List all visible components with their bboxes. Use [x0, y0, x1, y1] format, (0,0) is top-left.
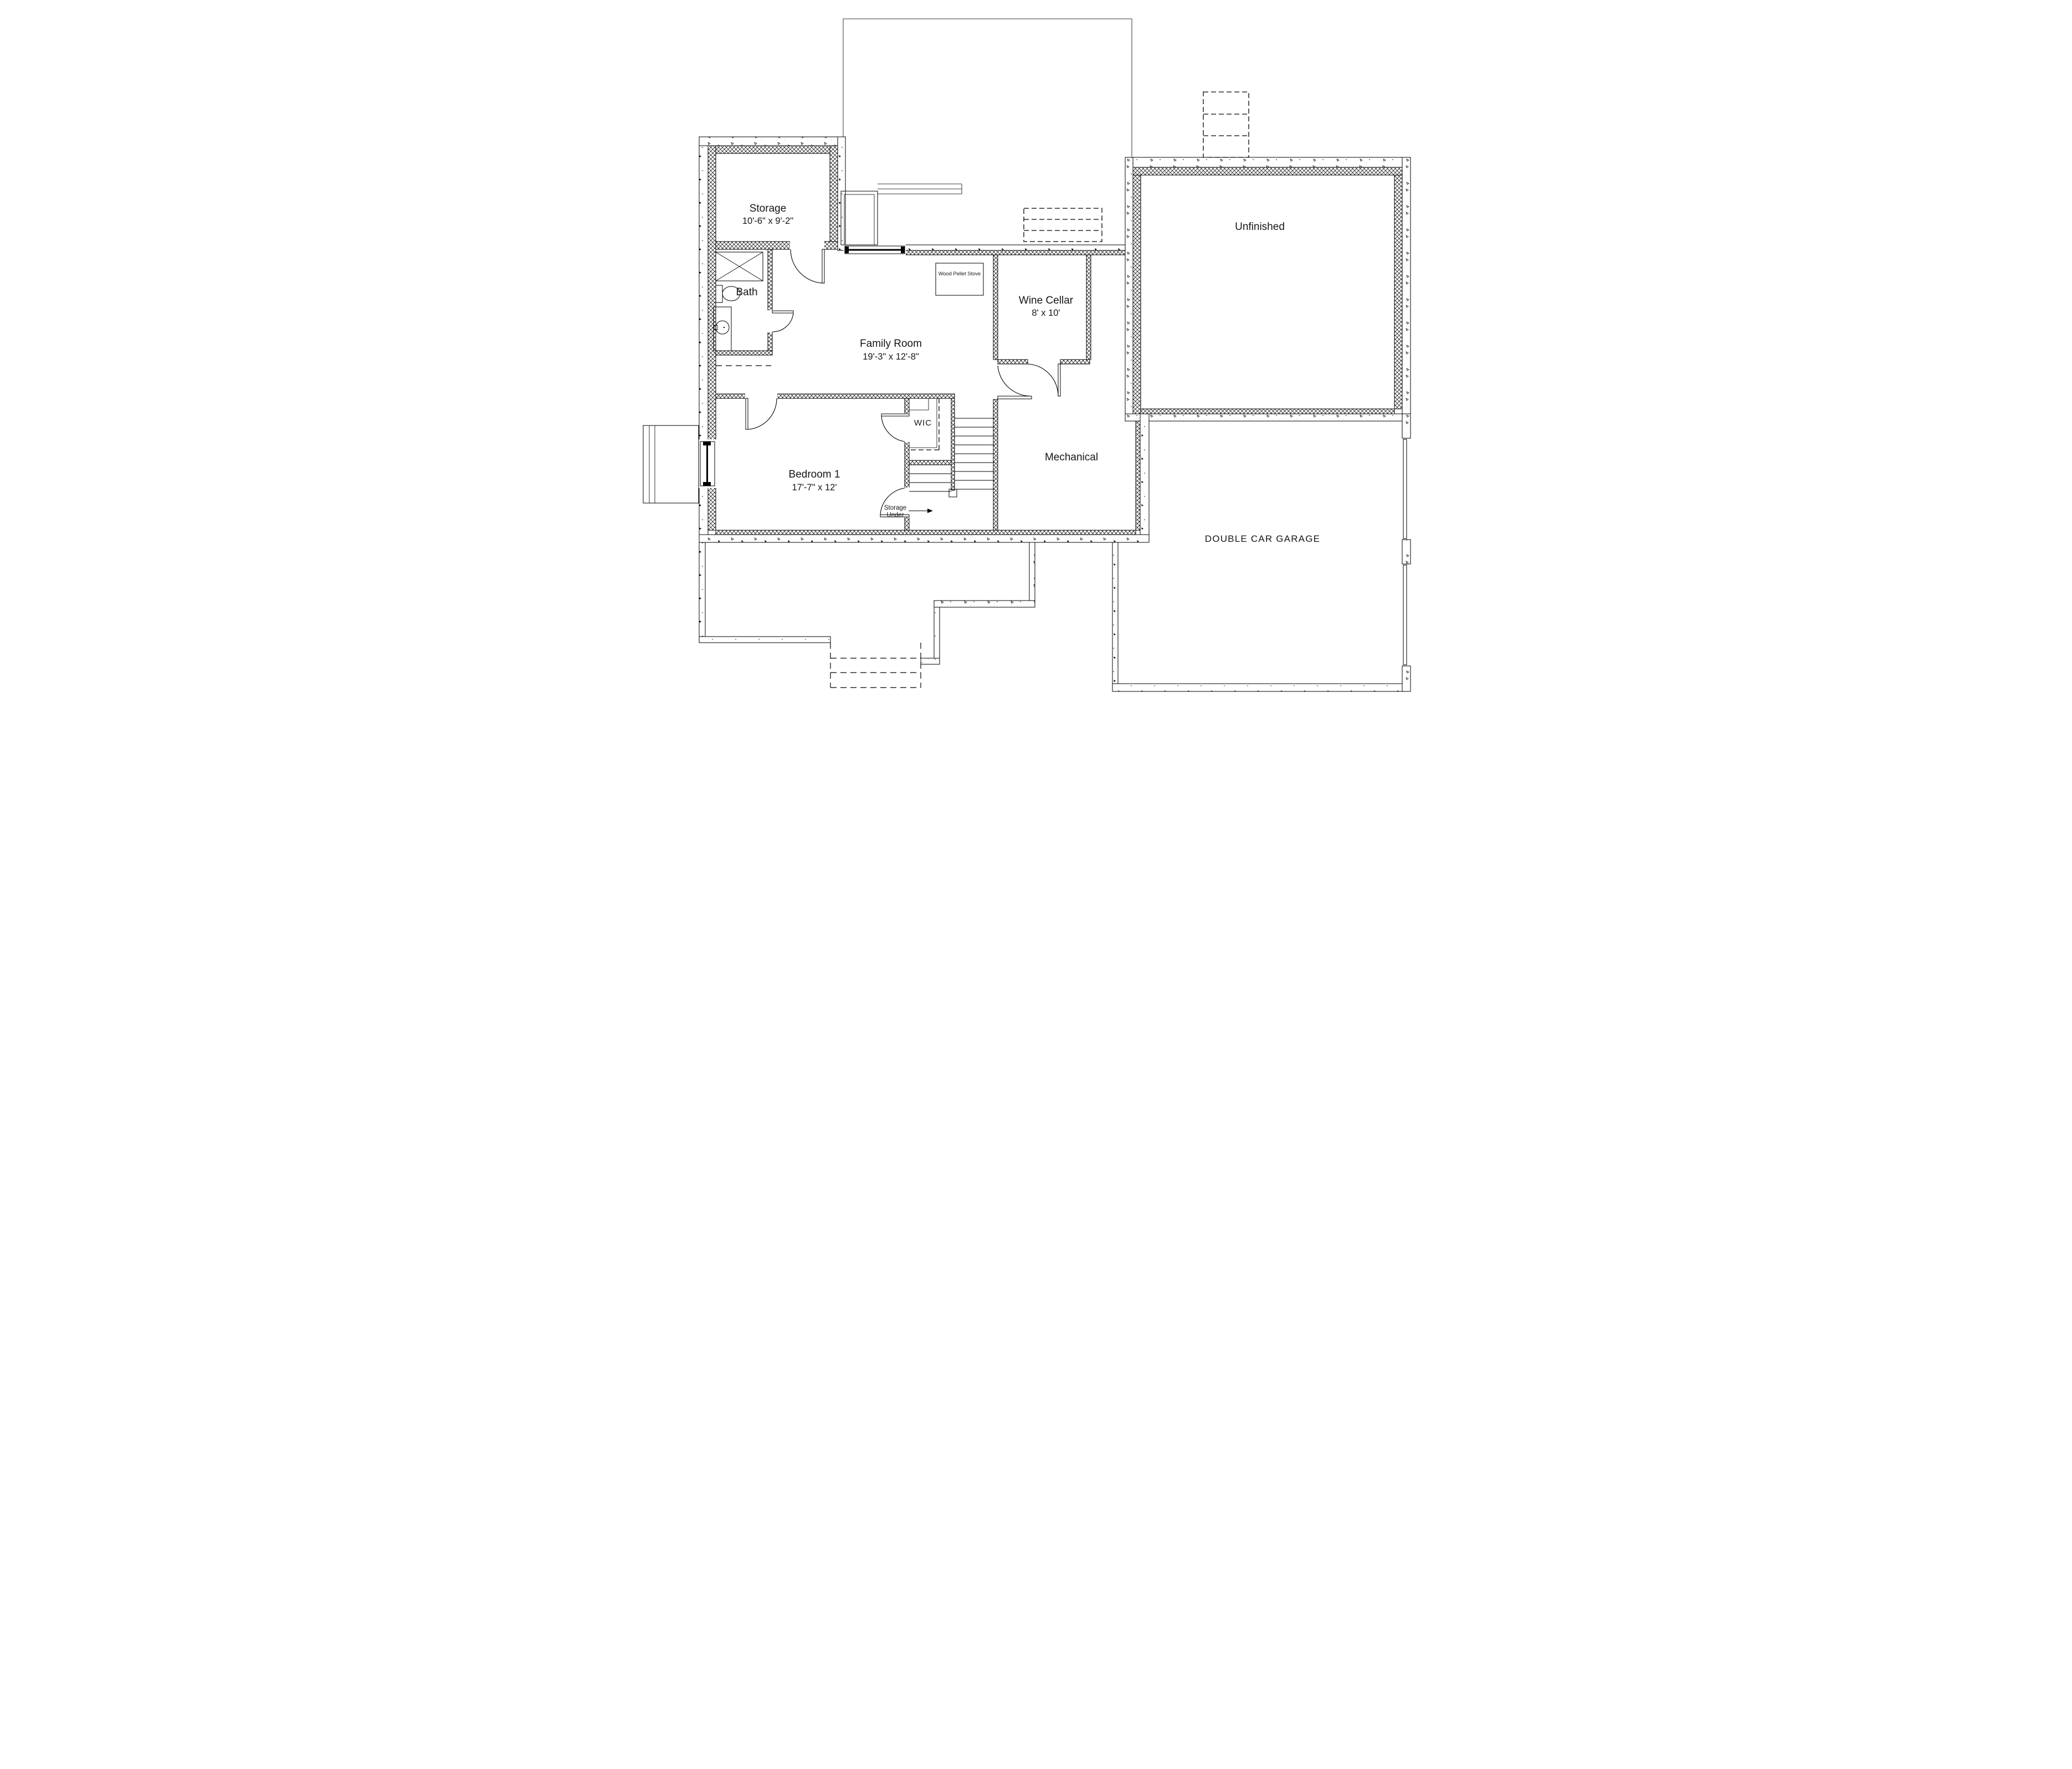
wine-cellar-doors [998, 364, 1060, 399]
patio-dashed-stairs [830, 643, 921, 688]
dashed-window-well-unfinished [1203, 92, 1249, 157]
garage-label: DOUBLE CAR GARAGE [1205, 534, 1320, 544]
wic-door [881, 413, 910, 442]
bedroom-window-well [643, 425, 699, 503]
bedroom-door [745, 393, 777, 429]
bath-vanity [714, 307, 731, 351]
bath-door [767, 310, 793, 332]
floor-plan-sheet: Wood Pellet Stove Storage 10'-6" x 9'-2"… [622, 0, 1450, 707]
wine-cellar-dims: 8' x 10' [1032, 308, 1060, 318]
exterior-concrete-walls [699, 137, 1411, 542]
bath-label: Bath [736, 286, 757, 298]
unfinished-label: Unfinished [1235, 221, 1285, 233]
storage-door [790, 241, 824, 283]
family-room-dims: 19'-3" x 12'-8" [863, 352, 919, 362]
storage-label: Storage [750, 203, 787, 214]
bedroom1-dims: 17'-7" x 12' [792, 483, 837, 493]
wine-cellar-label: Wine Cellar [1019, 295, 1074, 306]
storage-under-label-1: Storage [884, 505, 906, 511]
bedroom-window [699, 439, 716, 488]
stove-label: Wood Pellet Stove [938, 271, 981, 276]
family-room-label: Family Room [860, 338, 922, 350]
bedroom1-label: Bedroom 1 [789, 469, 840, 480]
family-room-window [844, 244, 906, 255]
storage-dims: 10'-6" x 9'-2" [742, 216, 793, 226]
floor-plan-drawing: Wood Pellet Stove Storage 10'-6" x 9'-2"… [622, 0, 1450, 707]
storage-under-label-2: Under [886, 512, 904, 519]
family-room-window-well [841, 184, 962, 245]
dashed-window-well-top [1024, 208, 1102, 242]
wood-pellet-stove: Wood Pellet Stove [936, 263, 983, 295]
wic-label: WIC [914, 418, 932, 428]
mechanical-label: Mechanical [1045, 452, 1098, 463]
floor-above-outline [843, 19, 1132, 245]
storage-under-arrow [909, 509, 933, 513]
shower [716, 252, 763, 281]
